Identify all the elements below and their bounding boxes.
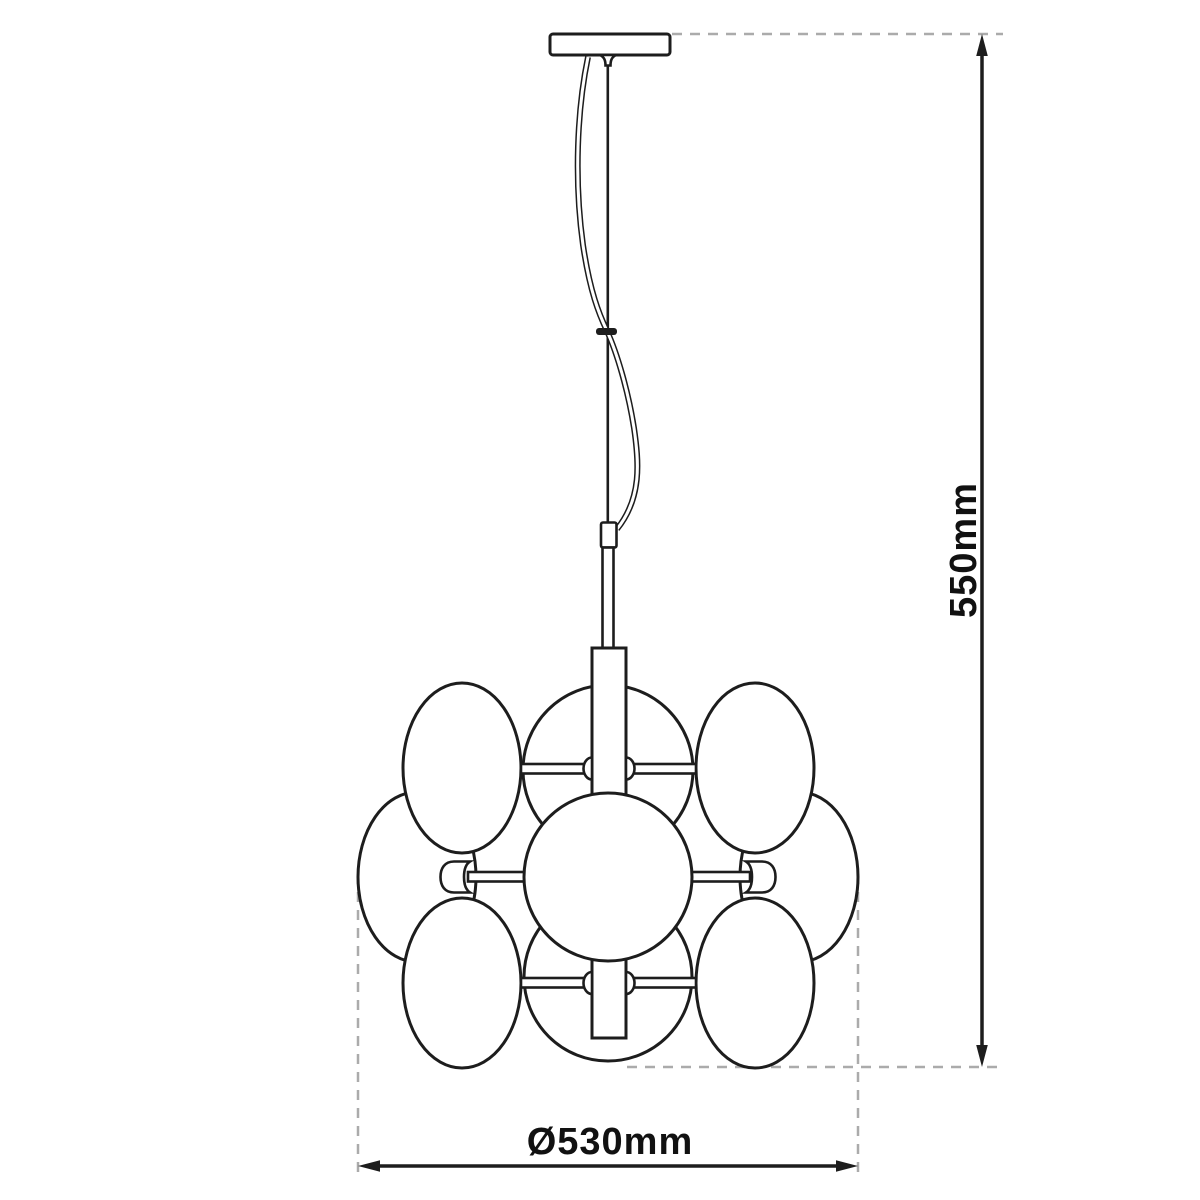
glass-globe-center	[524, 793, 692, 961]
diameter-dimension: Ø530mm	[358, 1121, 858, 1172]
stem-rod	[603, 548, 614, 649]
height-dimension-label: 550mm	[943, 482, 985, 618]
arm-bottom-left	[521, 978, 592, 988]
arm-joint-bottom-right	[626, 972, 635, 994]
arm-joint-bottom-left	[584, 972, 593, 994]
height-dimension: 550mm	[943, 34, 988, 1067]
arm-joint-top-right	[626, 758, 635, 780]
height-dimension-arrow-up	[976, 34, 988, 56]
glass-disc-top-left	[403, 683, 521, 853]
diagram-canvas: 550mm Ø530mm	[0, 0, 1200, 1200]
diameter-dimension-label: Ø530mm	[527, 1121, 694, 1163]
arm-middle-right	[688, 872, 750, 882]
arm-middle-left	[468, 872, 530, 882]
cable-clamp	[596, 328, 617, 335]
arm-joint-top-left	[584, 758, 593, 780]
glass-disc-top-right	[696, 683, 814, 853]
ceiling-canopy	[550, 34, 670, 55]
canopy-cord-grip	[600, 55, 616, 66]
glass-disc-bottom-left	[403, 898, 521, 1068]
cord-connector	[601, 523, 617, 548]
diameter-dimension-arrow-right	[836, 1160, 858, 1172]
height-dimension-arrow-down	[976, 1045, 988, 1067]
glass-disc-bottom-right	[696, 898, 814, 1068]
diameter-dimension-arrow-left	[358, 1160, 380, 1172]
arm-top-left	[521, 764, 592, 774]
pendant-lamp-dimension-diagram: 550mm Ø530mm	[0, 0, 1200, 1200]
